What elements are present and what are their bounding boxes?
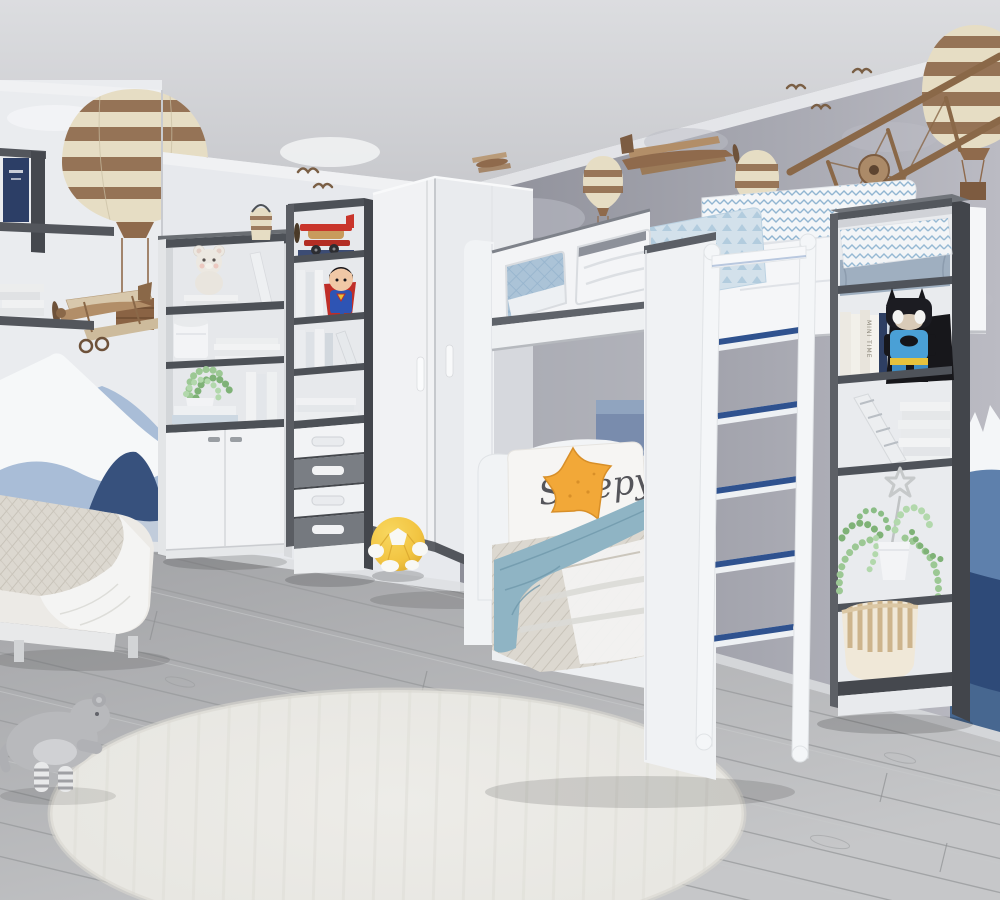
scene-canvas: Sleepy — [0, 0, 1000, 900]
bookcase-left — [158, 229, 292, 570]
cabinet-handle — [208, 437, 220, 442]
drawer-handle — [312, 466, 344, 475]
bed-leg — [14, 640, 24, 662]
book-spine-text: MINI TIME — [865, 320, 872, 359]
bedroom-scene: Sleepy — [0, 0, 1000, 900]
wardrobe-handle — [417, 357, 424, 391]
vertical-books — [246, 372, 277, 422]
striped-vase — [250, 205, 272, 240]
drawer-handle — [312, 525, 344, 534]
drawer-handle — [312, 437, 344, 446]
striped-basket — [842, 596, 918, 682]
books-group — [296, 270, 323, 318]
book — [184, 295, 238, 301]
cabinet-handle — [230, 437, 242, 442]
drawer-shelf-unit — [285, 198, 375, 587]
canister — [174, 317, 208, 358]
book — [174, 406, 236, 415]
right-shelf-unit: MINI TIME — [817, 194, 973, 734]
wardrobe-left-door — [373, 177, 435, 552]
navy-book — [3, 158, 29, 222]
drawer-handle — [312, 496, 344, 505]
bed-leg — [128, 636, 138, 658]
wardrobe-handle — [446, 345, 453, 377]
white-books-stack — [0, 284, 44, 316]
